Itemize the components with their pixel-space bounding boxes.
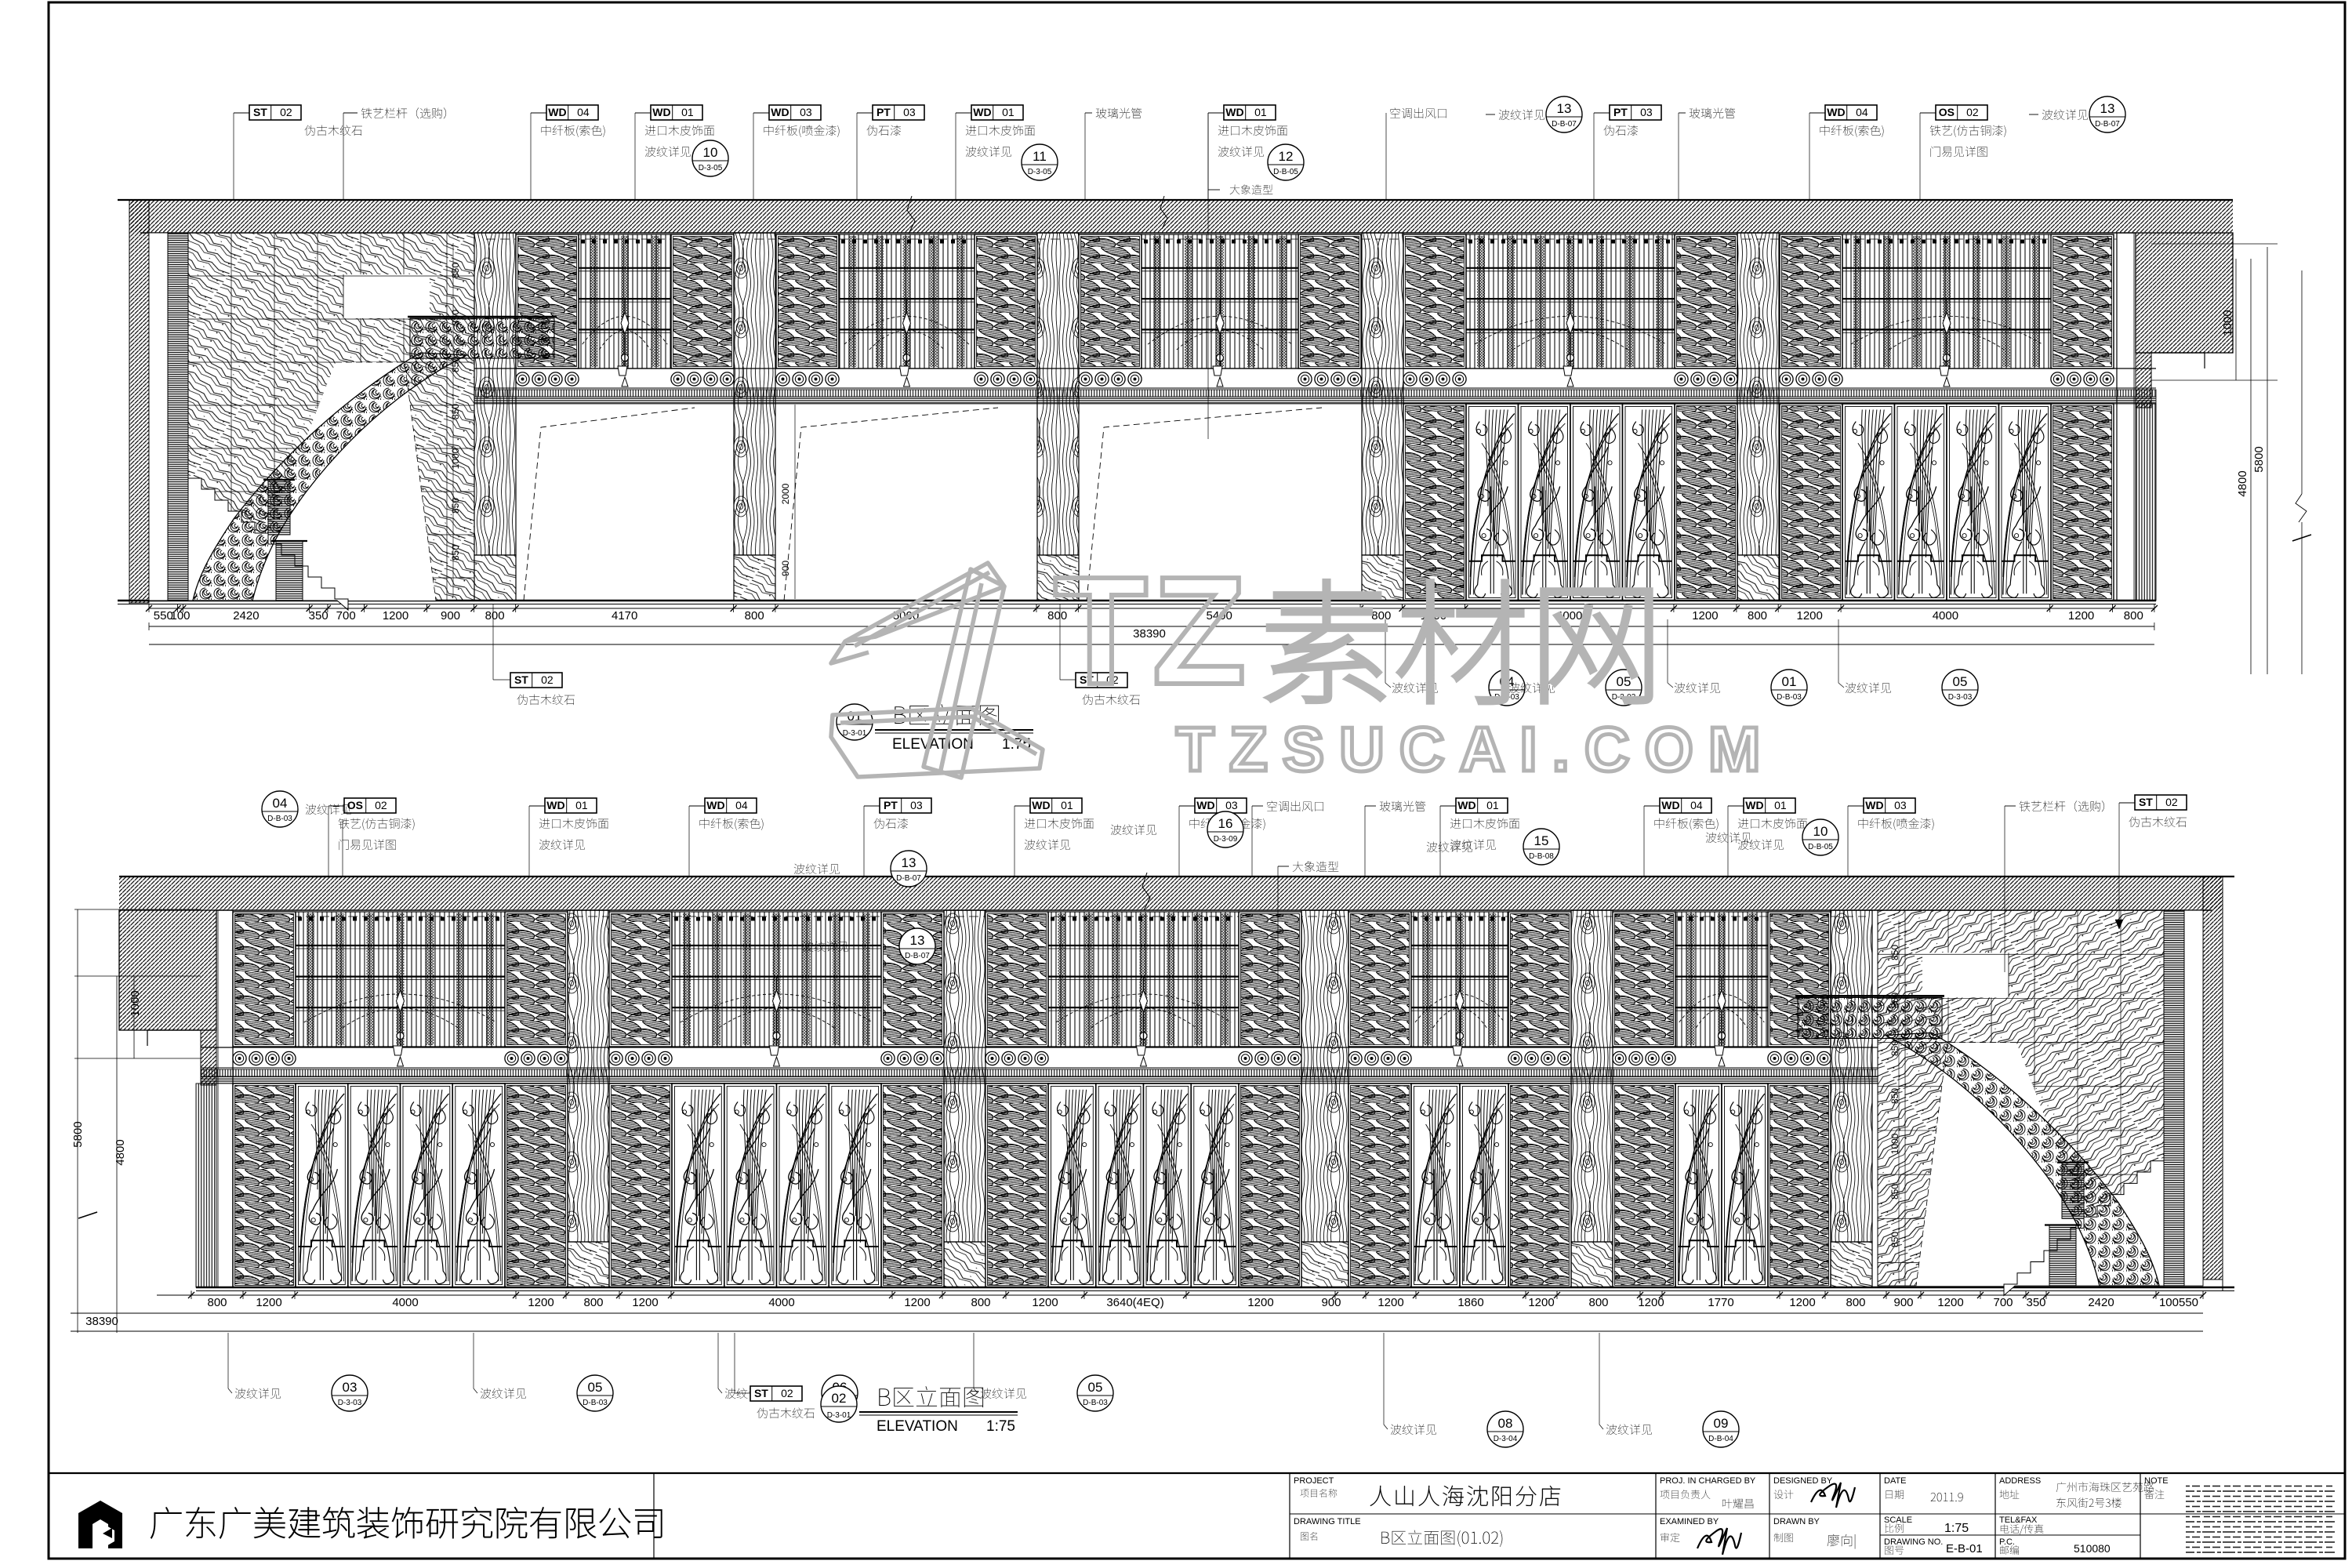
svg-text:10: 10 [1813,824,1828,839]
svg-text:04: 04 [273,796,288,811]
svg-text:1200: 1200 [1937,1296,1963,1309]
svg-text:04: 04 [577,106,590,118]
svg-text:DESIGNED BY: DESIGNED BY [1773,1476,1833,1486]
svg-text:800: 800 [745,609,764,622]
svg-text:03: 03 [1640,106,1653,118]
svg-text:E-B-01: E-B-01 [1946,1542,1983,1555]
svg-text:800: 800 [207,1296,227,1309]
svg-text:D-3-01: D-3-01 [843,729,867,738]
svg-text:05: 05 [1617,674,1632,689]
svg-text:800: 800 [1846,1296,1865,1309]
svg-text:D-3-03: D-3-03 [338,1399,362,1407]
svg-text:850: 850 [1889,1040,1900,1056]
svg-text:SCALE: SCALE [1884,1515,1912,1525]
svg-text:WD: WD [771,106,789,118]
svg-text:4000: 4000 [392,1296,418,1309]
svg-text:02: 02 [280,106,292,118]
svg-text:850: 850 [1889,1184,1900,1200]
svg-text:350: 350 [309,609,328,622]
svg-text:5800: 5800 [71,1121,85,1147]
svg-text:800: 800 [485,609,505,622]
svg-text:03: 03 [343,1380,358,1395]
svg-text:800: 800 [2124,609,2143,622]
svg-text:4170: 4170 [612,609,637,622]
svg-text:800: 800 [1588,1296,1608,1309]
svg-text:13: 13 [1557,101,1572,116]
svg-text:WD: WD [1661,799,1679,811]
svg-text:1200: 1200 [1789,1296,1815,1309]
svg-text:02: 02 [375,799,387,811]
svg-text:D-B-04: D-B-04 [1708,1435,1733,1443]
svg-text:TZ: TZ [1054,545,1250,717]
svg-text:01: 01 [681,106,694,118]
svg-text:WD: WD [548,106,566,118]
svg-text:D-B-03: D-B-03 [1777,693,1802,702]
svg-text:02: 02 [541,673,554,686]
svg-text:1860: 1860 [1457,1296,1483,1309]
svg-text:900: 900 [780,561,791,576]
svg-text:04: 04 [1856,106,1868,118]
svg-text:WD: WD [1196,799,1214,811]
svg-text:350: 350 [2026,1296,2045,1309]
svg-text:1200: 1200 [1032,1296,1058,1309]
svg-text:D-B-07: D-B-07 [905,952,930,960]
svg-text:NOTE: NOTE [2144,1476,2169,1486]
svg-text:D-B-08: D-B-08 [1529,852,1554,861]
svg-text:PROJECT: PROJECT [1294,1476,1334,1486]
svg-text:1200: 1200 [256,1296,281,1309]
svg-text:13: 13 [902,855,916,870]
svg-text:01: 01 [1782,674,1797,689]
svg-text:D-B-03: D-B-03 [267,815,292,823]
svg-text:1200: 1200 [904,1296,930,1309]
svg-text:D-B-03: D-B-03 [583,1399,608,1407]
svg-text:510080: 510080 [2074,1542,2111,1555]
svg-text:D-B-07: D-B-07 [2095,120,2120,129]
svg-text:D-3-09: D-3-09 [1214,835,1238,844]
svg-text:38390: 38390 [85,1315,118,1328]
svg-text:4800: 4800 [114,1139,127,1165]
svg-text:850: 850 [450,357,461,372]
svg-text:PROJ. IN CHARGED BY: PROJ. IN CHARGED BY [1660,1476,1756,1486]
svg-text:850: 850 [1889,1232,1900,1247]
svg-text:D-3-05: D-3-05 [1028,168,1052,176]
svg-text:05: 05 [1953,674,1968,689]
svg-text:1000: 1000 [450,448,461,469]
svg-text:PT: PT [1613,106,1628,118]
svg-text:01: 01 [1061,799,1073,811]
svg-text:2000: 2000 [780,483,791,504]
svg-text:09: 09 [1714,1416,1729,1431]
svg-text:01: 01 [1254,106,1267,118]
svg-text:15: 15 [1534,833,1549,848]
svg-text:ST: ST [2139,796,2153,808]
svg-text:850: 850 [1889,993,1900,1008]
svg-text:03: 03 [800,106,812,118]
svg-text:WD: WD [1032,799,1050,811]
svg-text:1200: 1200 [383,609,408,622]
svg-text:1200: 1200 [1377,1296,1403,1309]
svg-text:1:75: 1:75 [986,1418,1015,1435]
svg-text:100: 100 [170,609,190,622]
svg-text:1770: 1770 [1708,1296,1733,1309]
svg-text:02: 02 [781,1387,793,1399]
svg-text:2420: 2420 [2088,1296,2114,1309]
svg-text:4000: 4000 [1933,609,1958,622]
svg-text:WD: WD [1827,106,1845,118]
svg-text:850: 850 [450,310,461,325]
svg-text:PT: PT [884,799,898,811]
svg-text:WD: WD [706,799,724,811]
svg-text:800: 800 [583,1296,603,1309]
svg-text:TZSUCAI.COM: TZSUCAI.COM [1176,714,1776,784]
svg-text:D-3-03: D-3-03 [1948,693,1973,702]
svg-text:02: 02 [1966,106,1979,118]
svg-text:WD: WD [1225,106,1243,118]
svg-text:850: 850 [1889,1088,1900,1104]
svg-text:850: 850 [1889,945,1900,960]
svg-text:ST: ST [253,106,267,118]
svg-text:1000: 1000 [2221,310,2234,336]
svg-text:PT: PT [877,106,891,118]
svg-text:DRAWING TITLE: DRAWING TITLE [1294,1517,1361,1526]
svg-text:800: 800 [1371,609,1391,622]
svg-text:01: 01 [1002,106,1014,118]
svg-text:P.C.: P.C. [1999,1537,2015,1547]
svg-text:12: 12 [1279,149,1294,164]
svg-text:D-B-05: D-B-05 [1273,168,1298,176]
svg-text:D-3-05: D-3-05 [699,164,723,172]
svg-text:01: 01 [575,799,588,811]
svg-text:1200: 1200 [632,1296,658,1309]
svg-text:03: 03 [910,799,923,811]
svg-text:16: 16 [1218,816,1233,831]
svg-text:13: 13 [910,933,925,948]
svg-text:1:75: 1:75 [1944,1522,1969,1535]
svg-text:1000: 1000 [129,990,142,1016]
svg-text:1000: 1000 [1889,1133,1900,1154]
svg-text:850: 850 [450,545,461,561]
svg-text:D-B-03: D-B-03 [1083,1399,1108,1407]
svg-text:850: 850 [450,498,461,514]
svg-text:D-B-07: D-B-07 [896,874,921,883]
svg-text:850: 850 [450,404,461,419]
svg-text:D-B-05: D-B-05 [1808,843,1833,851]
svg-text:04: 04 [735,799,748,811]
svg-text:700: 700 [1993,1296,2013,1309]
svg-text:OS: OS [1939,106,1955,118]
svg-text:4000: 4000 [768,1296,794,1309]
svg-text:800: 800 [1748,609,1767,622]
svg-text:700: 700 [336,609,356,622]
svg-text:900: 900 [1893,1296,1913,1309]
svg-text:D-3-01: D-3-01 [827,1411,851,1420]
svg-text:ST: ST [514,673,528,686]
svg-text:02: 02 [2165,796,2178,808]
svg-text:1200: 1200 [1797,609,1823,622]
svg-text:WD: WD [973,106,991,118]
svg-text:WD: WD [546,799,564,811]
svg-text:11: 11 [1033,149,1047,164]
svg-text:WD: WD [1865,799,1883,811]
svg-text:5800: 5800 [2252,446,2266,472]
svg-text:10: 10 [703,145,718,160]
svg-text:1200: 1200 [1247,1296,1273,1309]
svg-text:800: 800 [971,1296,990,1309]
svg-text:3640(4EQ): 3640(4EQ) [1106,1296,1163,1309]
svg-text:DRAWN BY: DRAWN BY [1773,1517,1820,1526]
svg-text:D-B-07: D-B-07 [1552,120,1577,129]
svg-text:WD: WD [652,106,670,118]
svg-text:03: 03 [903,106,916,118]
svg-text:05: 05 [1088,1380,1103,1395]
svg-text:01: 01 [1774,799,1787,811]
svg-text:04: 04 [1690,799,1703,811]
svg-text:08: 08 [1498,1416,1513,1431]
svg-text:ST: ST [754,1387,768,1399]
svg-text:13: 13 [2100,101,2115,116]
svg-text:900: 900 [441,609,460,622]
svg-text:ADDRESS: ADDRESS [1999,1476,2041,1486]
svg-text:03: 03 [1225,799,1238,811]
svg-text:ELEVATION: ELEVATION [877,1418,958,1435]
svg-text:4800: 4800 [2236,470,2249,496]
svg-text:WD: WD [1457,799,1475,811]
svg-text:DRAWING NO.: DRAWING NO. [1884,1537,1943,1547]
svg-text:03: 03 [1894,799,1907,811]
svg-text:05: 05 [588,1380,603,1395]
svg-text:1200: 1200 [528,1296,554,1309]
svg-text:900: 900 [1321,1296,1341,1309]
svg-text:1200: 1200 [1692,609,1718,622]
svg-text:100550: 100550 [2159,1296,2198,1309]
svg-text:1200: 1200 [1528,1296,1554,1309]
svg-text:850: 850 [450,263,461,278]
svg-text:WD: WD [1745,799,1763,811]
svg-text:02: 02 [832,1391,847,1406]
svg-text:ELEVATION: ELEVATION [892,736,974,753]
svg-text:01: 01 [1486,799,1499,811]
svg-text:D-3-04: D-3-04 [1494,1435,1518,1443]
svg-text:2420: 2420 [233,609,259,622]
svg-text:TEL&FAX: TEL&FAX [1999,1515,2038,1525]
svg-text:1200: 1200 [2068,609,2094,622]
svg-text:1200: 1200 [1638,1296,1664,1309]
svg-text:DATE: DATE [1884,1476,1907,1486]
svg-text:EXAMINED BY: EXAMINED BY [1660,1517,1719,1526]
